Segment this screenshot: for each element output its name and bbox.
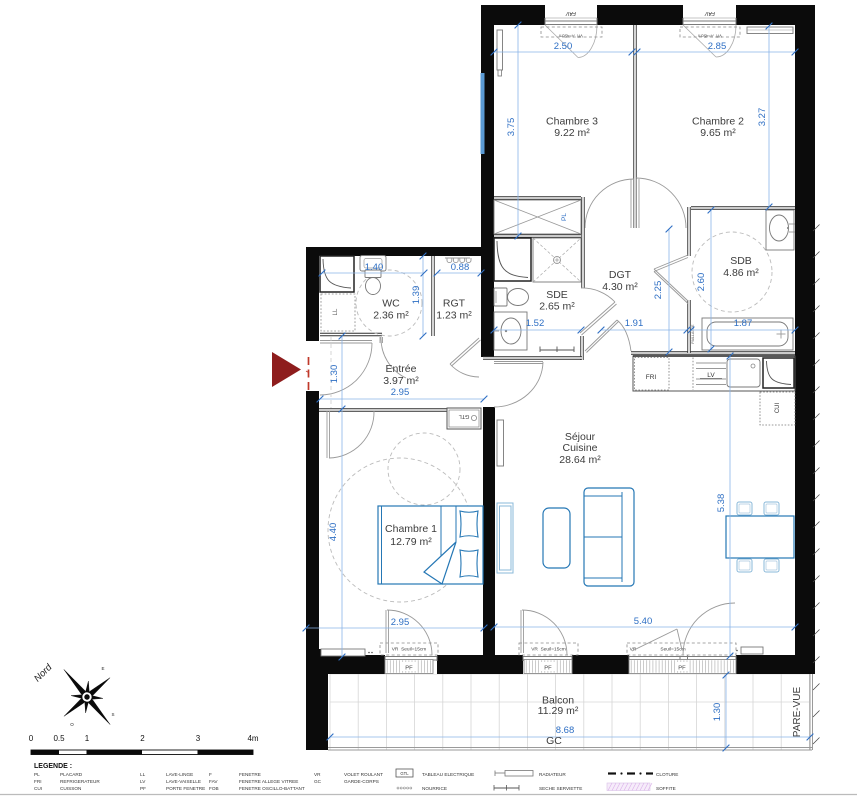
svg-text:GTL: GTL (459, 413, 470, 419)
svg-text:2.95: 2.95 (391, 387, 410, 398)
svg-text:GC: GC (314, 779, 322, 784)
svg-text:2.85: 2.85 (708, 41, 727, 52)
svg-text:E: E (101, 666, 104, 671)
svg-text:5.38: 5.38 (716, 494, 727, 513)
svg-text:2.36 m²: 2.36 m² (373, 310, 409, 322)
svg-text:FAV: FAV (209, 779, 218, 784)
svg-text:PF: PF (678, 666, 686, 672)
svg-text:DGT: DGT (609, 269, 632, 281)
svg-text:SDB: SDB (730, 255, 752, 267)
svg-text:4m: 4m (247, 734, 258, 743)
svg-text:1.30: 1.30 (712, 703, 723, 722)
svg-text:FAV: FAV (704, 10, 715, 16)
svg-text:PF: PF (405, 666, 413, 672)
svg-text:4.40: 4.40 (328, 523, 339, 542)
svg-text:Chambre 2: Chambre 2 (692, 116, 744, 128)
svg-text:1.40: 1.40 (365, 262, 384, 273)
svg-text:28.64 m²: 28.64 m² (559, 454, 601, 466)
svg-text:TABLEAU ELECTRIQUE: TABLEAU ELECTRIQUE (422, 772, 474, 777)
svg-text:1.91: 1.91 (625, 318, 644, 329)
svg-text:FRI: FRI (646, 374, 657, 381)
svg-text:3: 3 (196, 734, 201, 743)
svg-text:VR Seuil=15cm: VR Seuil=15cm (531, 647, 566, 653)
svg-text:VR A=45cm: VR A=45cm (698, 34, 722, 39)
svg-text:2.65 m²: 2.65 m² (539, 301, 575, 313)
svg-text:11.29 m²: 11.29 m² (538, 705, 579, 717)
svg-text:WC: WC (382, 298, 400, 310)
svg-text:1.39: 1.39 (411, 286, 422, 305)
svg-text:9.22 m²: 9.22 m² (554, 127, 590, 139)
svg-text:REFRIGERATEUR: REFRIGERATEUR (60, 779, 100, 784)
svg-text:Cuisine: Cuisine (562, 442, 597, 454)
svg-text:LV: LV (140, 779, 146, 784)
svg-text:VR Seuil=15cm: VR Seuil=15cm (392, 647, 427, 653)
svg-text:2.50: 2.50 (554, 41, 573, 52)
svg-text:LV: LV (707, 372, 715, 379)
svg-text:PORTE FENETRE: PORTE FENETRE (166, 786, 205, 791)
svg-text:2.25: 2.25 (653, 281, 664, 300)
svg-text:Chambre 3: Chambre 3 (546, 116, 598, 128)
svg-text:0: 0 (29, 734, 34, 743)
svg-text:12.79 m²: 12.79 m² (390, 536, 432, 548)
svg-text:GTL: GTL (400, 771, 409, 776)
svg-text:1.23 m²: 1.23 m² (436, 310, 472, 322)
svg-text:PLACARD: PLACARD (60, 772, 83, 777)
svg-text:LAVE-LINGE: LAVE-LINGE (166, 772, 193, 777)
svg-text:1: 1 (85, 734, 90, 743)
svg-text:3.97 m²: 3.97 m² (383, 375, 419, 387)
svg-text:3.75: 3.75 (506, 118, 517, 137)
svg-text:CLOTURE: CLOTURE (656, 772, 678, 777)
svg-text:LL: LL (333, 308, 339, 315)
svg-text:Chambre 1: Chambre 1 (385, 523, 437, 535)
svg-text:VOLET ROULANT: VOLET ROULANT (344, 772, 383, 777)
svg-text:2: 2 (140, 734, 145, 743)
svg-text:FENETRE OSCILLO-BATTANT: FENETRE OSCILLO-BATTANT (239, 786, 305, 791)
svg-text:PARE-VUE: PARE-VUE (792, 686, 803, 737)
svg-text:VR A=45cm: VR A=45cm (559, 34, 583, 39)
svg-text:LAVE-VAISELLE: LAVE-VAISELLE (166, 779, 201, 784)
svg-text:5.40: 5.40 (634, 616, 653, 627)
svg-text:PL: PL (34, 772, 40, 777)
svg-text:3.27: 3.27 (757, 108, 768, 127)
svg-text:Entrée: Entrée (386, 363, 417, 375)
svg-text:4.30 m²: 4.30 m² (602, 281, 638, 293)
svg-text:1.87: 1.87 (734, 318, 753, 329)
svg-text:F: F (209, 772, 212, 777)
svg-text:FRI: FRI (34, 779, 42, 784)
svg-text:SDE: SDE (546, 289, 568, 301)
svg-text:FENETRE: FENETRE (239, 772, 261, 777)
svg-text:NOURRICE: NOURRICE (422, 786, 447, 791)
svg-text:4.86 m²: 4.86 m² (723, 267, 759, 279)
svg-text:PF: PF (544, 666, 552, 672)
svg-text:O: O (70, 722, 74, 727)
svg-text:2.60: 2.60 (696, 273, 707, 292)
svg-text:SECHE SERVIETTE: SECHE SERVIETTE (539, 786, 582, 791)
svg-text:RADIATEUR: RADIATEUR (539, 772, 566, 777)
svg-text:VR: VR (314, 772, 321, 777)
svg-text:9.65 m²: 9.65 m² (700, 127, 736, 139)
svg-text:RGT: RGT (443, 298, 466, 310)
svg-text:1.30: 1.30 (329, 365, 340, 384)
svg-text:0.5: 0.5 (53, 734, 65, 743)
svg-text:CUISSON: CUISSON (60, 786, 81, 791)
svg-text:S: S (111, 712, 114, 717)
svg-text:FOB: FOB (209, 786, 219, 791)
svg-text:GC: GC (546, 735, 562, 747)
svg-text:SOFFITE: SOFFITE (656, 786, 676, 791)
svg-text:2.95: 2.95 (391, 617, 410, 628)
svg-text:0.88: 0.88 (451, 262, 470, 273)
svg-text:LL: LL (140, 772, 146, 777)
svg-text:PL: PL (561, 213, 568, 221)
svg-text:PF: PF (140, 786, 146, 791)
svg-text:1.52: 1.52 (526, 318, 545, 329)
svg-text:CUI: CUI (775, 403, 781, 414)
svg-text:GARDE-CORPS: GARDE-CORPS (344, 779, 379, 784)
svg-text:LEGENDE :: LEGENDE : (34, 763, 72, 770)
svg-text:CUI: CUI (34, 786, 42, 791)
svg-text:FAV: FAV (565, 10, 576, 16)
svg-text:FENETRE ALLEGE VITREE: FENETRE ALLEGE VITREE (239, 779, 298, 784)
